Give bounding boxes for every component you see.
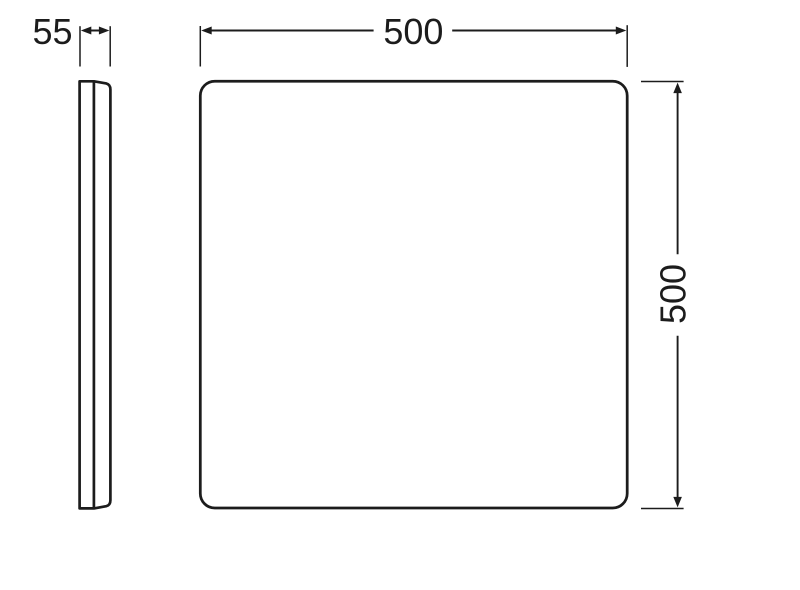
svg-text:55: 55: [32, 11, 72, 52]
svg-text:500: 500: [653, 264, 694, 324]
svg-text:500: 500: [383, 11, 443, 52]
